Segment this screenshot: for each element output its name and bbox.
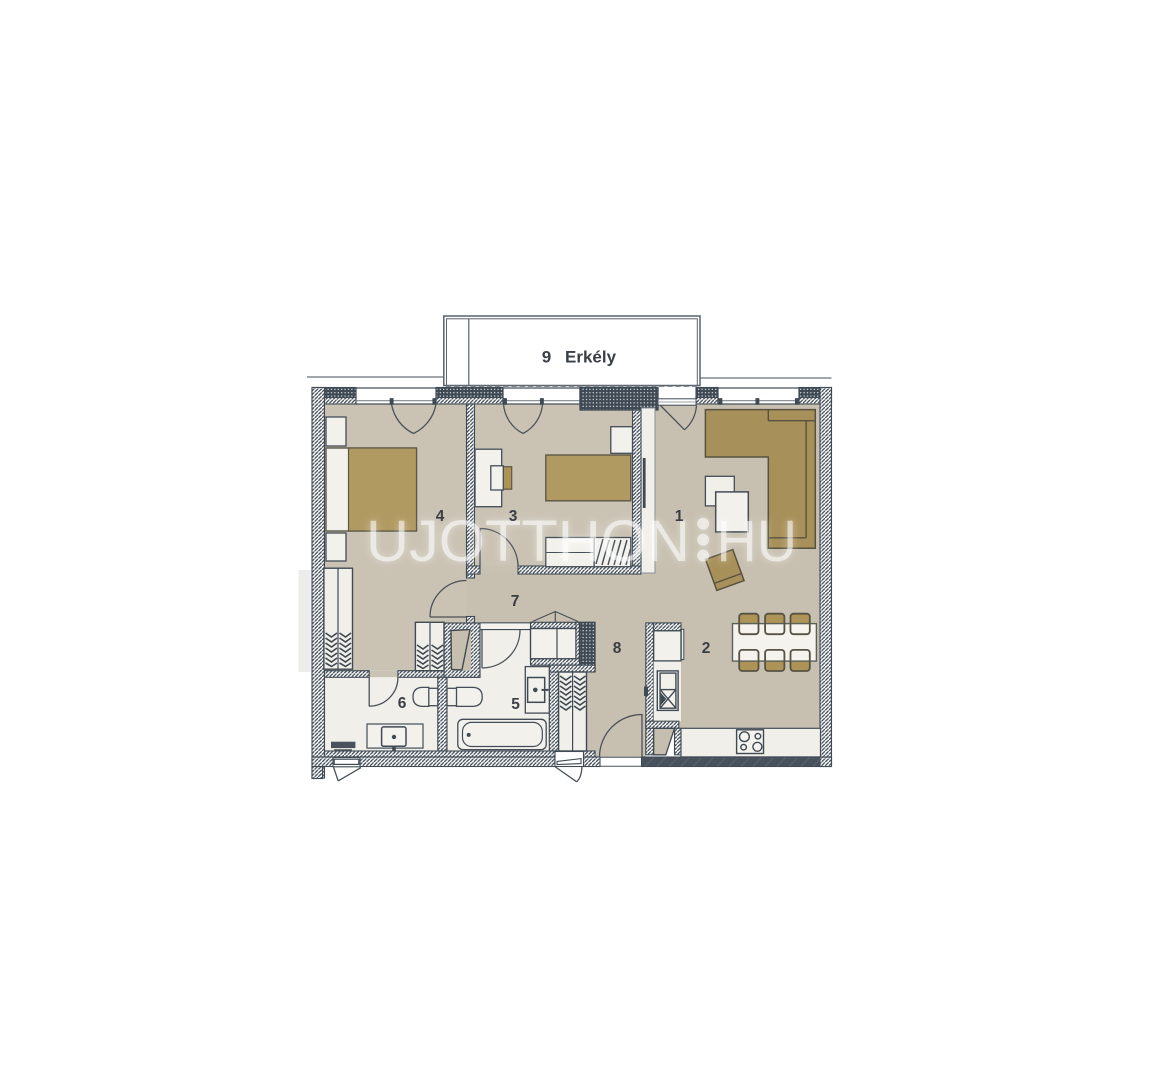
- svg-text:UJOTTHON: UJOTTHON: [366, 509, 690, 574]
- svg-text:6: 6: [398, 695, 407, 712]
- svg-text:Erkély: Erkély: [565, 348, 617, 367]
- svg-text:3: 3: [509, 508, 518, 525]
- svg-text:4: 4: [436, 508, 445, 525]
- svg-text:1: 1: [675, 508, 684, 525]
- svg-text:7: 7: [511, 593, 520, 610]
- svg-text:9: 9: [542, 348, 551, 367]
- svg-text:8: 8: [613, 640, 622, 657]
- svg-text:HU: HU: [717, 509, 798, 574]
- svg-text:5: 5: [511, 696, 520, 713]
- svg-text:2: 2: [702, 640, 711, 657]
